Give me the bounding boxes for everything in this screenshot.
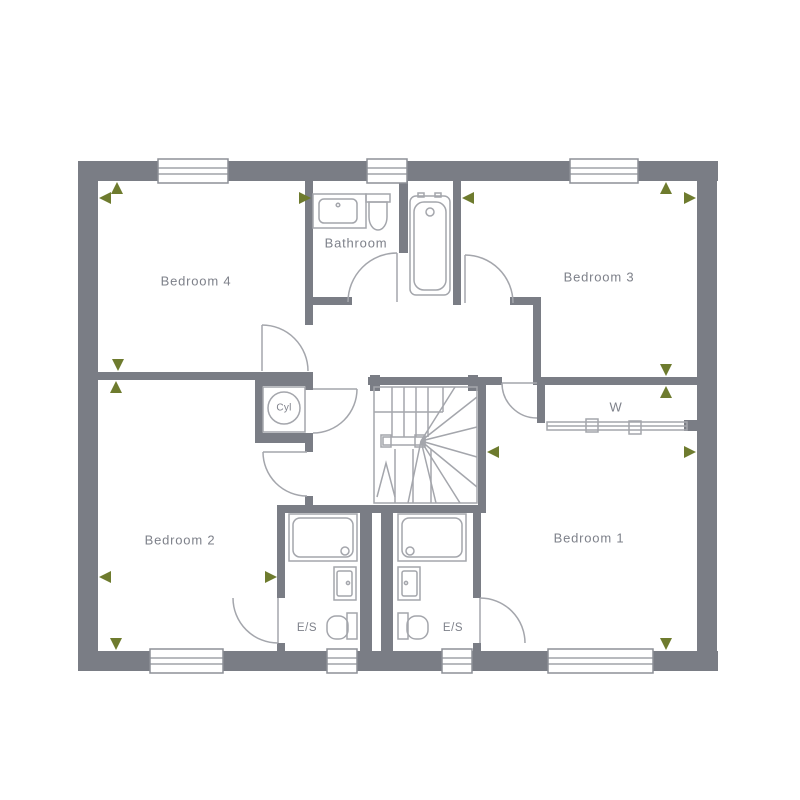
room-label-bedroom-4: Bedroom 4 xyxy=(161,274,232,289)
dimension-arrow-left xyxy=(99,571,111,583)
door-bedroom-1 xyxy=(502,383,537,418)
sliding-wardrobe-door-symbol xyxy=(547,419,687,434)
wall-bathroom-south xyxy=(313,297,352,305)
doors xyxy=(233,253,687,643)
room-label-ensuite-right: E/S xyxy=(443,622,463,634)
dimension-arrow-left xyxy=(99,192,111,204)
window-symbol xyxy=(327,649,357,673)
winder-stairs-symbol xyxy=(374,387,477,503)
wall-right xyxy=(697,161,717,671)
door-ensuite-right xyxy=(480,598,525,643)
dimension-arrow-down xyxy=(112,359,124,371)
wall-ensuite-right-east xyxy=(473,513,481,598)
ensuite-left-fixtures xyxy=(289,514,357,639)
window-symbol xyxy=(150,649,223,673)
door-bedroom-4 xyxy=(262,325,308,371)
wall-shaft-right xyxy=(381,513,393,651)
window-symbol xyxy=(442,649,472,673)
dimension-arrow-up xyxy=(110,381,122,393)
room-label-wardrobe: W xyxy=(609,400,622,415)
wall-wardrobe-west xyxy=(537,385,545,423)
dimension-arrow-up xyxy=(111,182,123,194)
stair-direction-arrow xyxy=(377,463,395,497)
ensuite-right-fixtures xyxy=(398,514,466,639)
wall-cupboard-bottom xyxy=(255,433,313,443)
toilet-symbol xyxy=(398,613,428,639)
dimension-arrow-right xyxy=(684,192,696,204)
door-bedroom-2 xyxy=(263,452,307,496)
wall-ensuite-left-west xyxy=(277,513,285,598)
door-cylinder-cupboard xyxy=(313,389,357,433)
dimension-arrow-up xyxy=(660,182,672,194)
wall-stair-top xyxy=(368,377,502,385)
vanity-basin-symbol xyxy=(313,194,366,228)
wall-ensuite-top xyxy=(277,505,486,513)
dimension-arrow-right xyxy=(684,446,696,458)
room-label-bathroom: Bathroom xyxy=(325,236,388,251)
window-symbol xyxy=(548,649,653,673)
wall-bed2-east-stub1 xyxy=(305,443,313,452)
shower-tray-symbol xyxy=(398,514,466,561)
bathtub-symbol xyxy=(410,193,450,295)
basin-symbol xyxy=(398,567,420,600)
wall-bath-alcove-east xyxy=(453,181,461,305)
door-bedroom-3 xyxy=(465,255,513,303)
wall-bed4-east xyxy=(305,181,313,325)
wall-left xyxy=(78,161,98,671)
window-symbol xyxy=(367,159,407,183)
toilet-symbol xyxy=(366,194,390,230)
dimension-arrow-left xyxy=(462,192,474,204)
dimension-arrow-down xyxy=(110,638,122,650)
wall-bath-alcove-divider xyxy=(399,181,408,253)
floor-plan-page: Bedroom 4 Bathroom Bedroom 3 W Cyl Bedro… xyxy=(0,0,800,800)
wall-divider-bed4-bed2 xyxy=(98,372,263,380)
dimension-arrow-down xyxy=(660,638,672,650)
wall-cupboard-east-stub xyxy=(305,386,313,390)
dimension-arrow-right xyxy=(265,571,277,583)
wall-shaft-left xyxy=(360,513,372,651)
shower-tray-symbol xyxy=(289,514,357,561)
floor-plan: Bedroom 4 Bathroom Bedroom 3 W Cyl Bedro… xyxy=(0,0,800,800)
window-symbol xyxy=(158,159,228,183)
dimension-arrow-up xyxy=(660,386,672,398)
basin-symbol xyxy=(334,567,356,600)
wall-wardrobe-top xyxy=(537,377,697,385)
dimension-arrow-left xyxy=(487,446,499,458)
door-ensuite-left xyxy=(233,598,278,643)
room-label-bedroom-1: Bedroom 1 xyxy=(554,531,625,546)
window-symbol xyxy=(570,159,638,183)
room-label-ensuite-left: E/S xyxy=(297,622,317,634)
room-label-cylinder: Cyl xyxy=(276,403,291,414)
toilet-symbol xyxy=(327,613,357,639)
room-label-bedroom-2: Bedroom 2 xyxy=(145,533,216,548)
dimension-arrow-down xyxy=(660,364,672,376)
wall-stair-east xyxy=(478,385,486,513)
wall-cupboard-top xyxy=(255,372,313,386)
door-bathroom xyxy=(348,253,397,302)
wall-bed3-west xyxy=(533,297,541,385)
wall-ensuite-left-west-stub xyxy=(277,643,285,651)
wall-ensuite-right-east-stub xyxy=(473,643,481,651)
room-label-bedroom-3: Bedroom 3 xyxy=(564,270,635,285)
stair-post-left xyxy=(370,375,380,391)
